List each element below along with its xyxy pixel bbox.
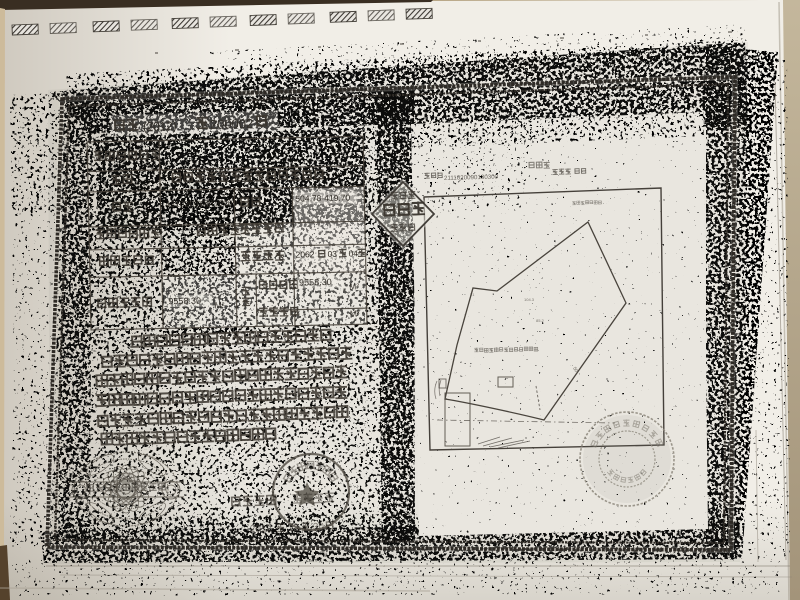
svg-text:43102(2009)10200: 43102(2009)10200 xyxy=(165,198,237,210)
svg-text:04: 04 xyxy=(348,248,358,258)
svg-text:104.3: 104.3 xyxy=(524,297,535,302)
svg-text:M²: M² xyxy=(350,308,360,318)
svg-text:21: 21 xyxy=(470,292,475,297)
svg-text:2111020090130300: 2111020090130300 xyxy=(444,174,499,182)
svg-text:30: 30 xyxy=(313,522,325,533)
svg-text:2012: 2012 xyxy=(250,523,273,535)
svg-text:504.78-419.70: 504.78-419.70 xyxy=(295,192,350,203)
svg-text:(2012): (2012) xyxy=(143,119,177,134)
svg-text:12: 12 xyxy=(288,523,300,534)
svg-text:M²: M² xyxy=(214,300,224,310)
svg-text:2062: 2062 xyxy=(295,249,314,259)
svg-text:85.2: 85.2 xyxy=(536,318,545,323)
svg-text:200002: 200002 xyxy=(210,116,254,132)
svg-text:M²: M² xyxy=(349,281,359,291)
svg-text:9558.30: 9558.30 xyxy=(299,277,332,288)
svg-text:03: 03 xyxy=(327,249,337,259)
svg-text:9558.30: 9558.30 xyxy=(168,296,201,307)
